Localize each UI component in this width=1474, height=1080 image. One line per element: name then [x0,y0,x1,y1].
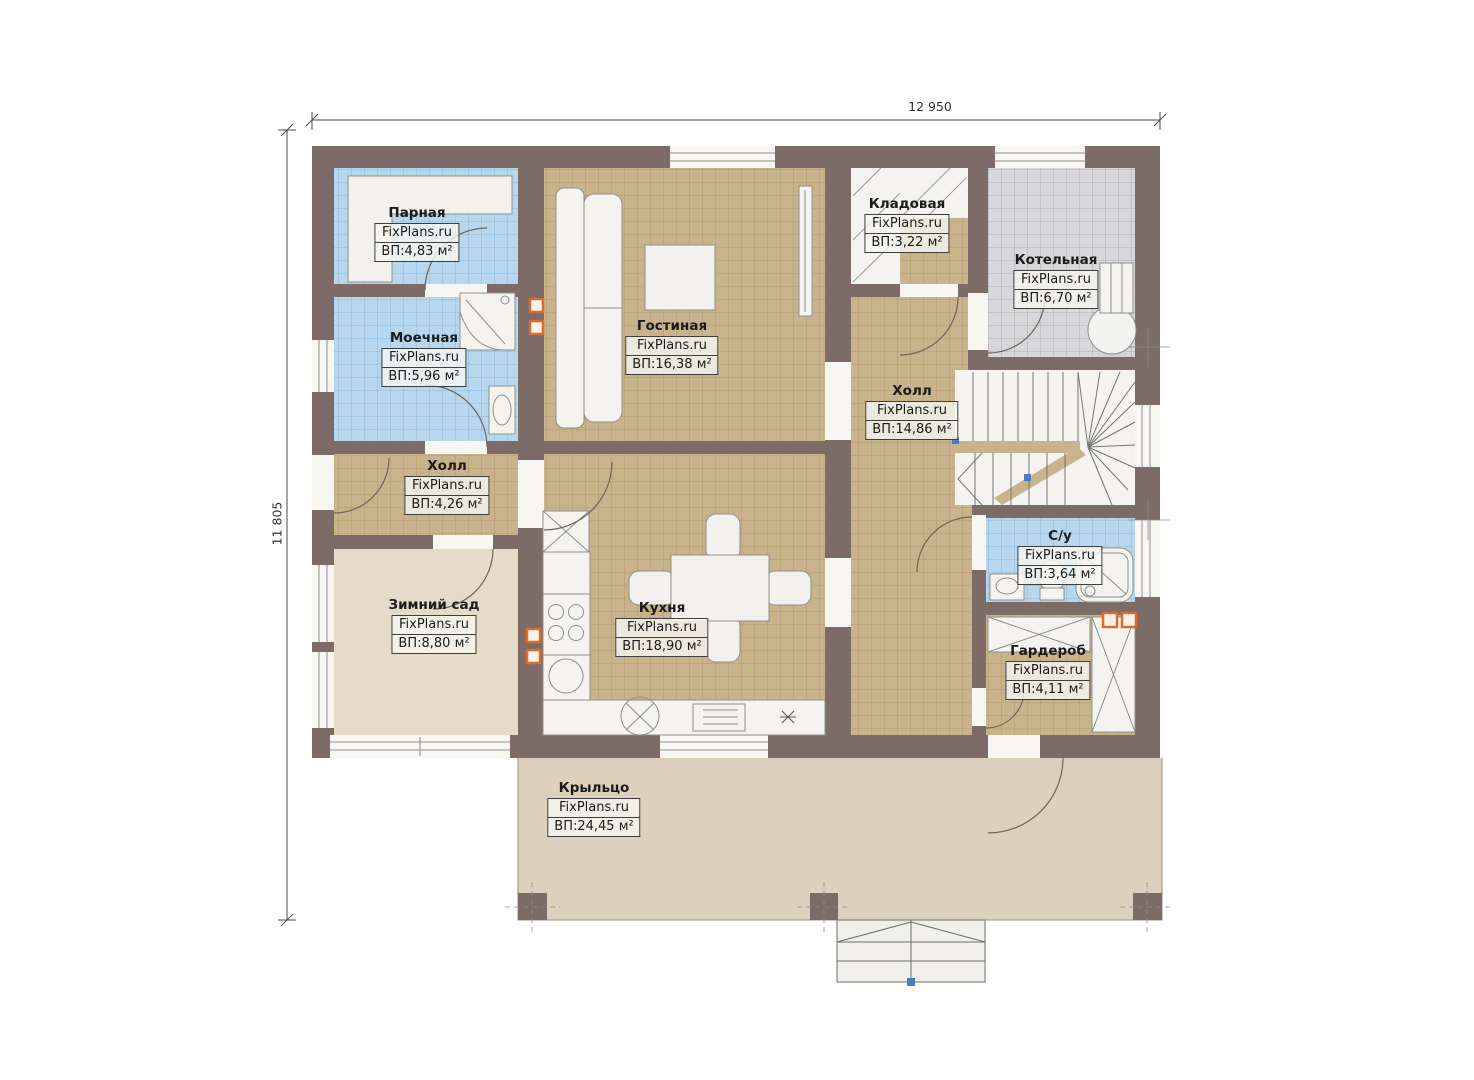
room-name: Моечная [381,330,466,346]
room-brand: FixPlans.ru [1017,546,1102,566]
room-name: С/у [1017,528,1102,544]
room-name: Гардероб [1005,643,1090,659]
room-brand: FixPlans.ru [391,615,476,635]
kitchen-fridge [543,511,589,552]
room-name: Крыльцо [547,780,640,796]
room-label-zimniy-sad: Зимний сад FixPlans.ru ВП:8,80 м² [388,597,479,654]
dimension-height-label: 11 805 [269,502,284,546]
room-brand: FixPlans.ru [547,798,640,818]
kitchen-counter-bottom [543,697,825,735]
room-area: ВП:8,80 м² [391,635,476,654]
room-area: ВП:5,96 м² [381,368,466,387]
room-label-gostinaya: Гостиная FixPlans.ru ВП:16,38 м² [625,318,718,375]
room-name: Зимний сад [388,597,479,613]
room-brand: FixPlans.ru [404,476,489,496]
room-name: Гостиная [625,318,718,334]
room-area: ВП:24,45 м² [547,818,640,837]
room-area: ВП:3,22 м² [864,234,949,253]
room-name: Парная [374,205,459,221]
room-label-parnaya: Парная FixPlans.ru ВП:4,83 м² [374,205,459,262]
floor-plan-drawing [0,0,1474,1080]
room-label-moechnaya: Моечная FixPlans.ru ВП:5,96 м² [381,330,466,387]
room-area: ВП:4,83 м² [374,243,459,262]
room-label-kladovaya: Кладовая FixPlans.ru ВП:3,22 м² [864,196,949,253]
room-area: ВП:4,26 м² [404,496,489,515]
living-room-table [645,245,715,310]
room-brand: FixPlans.ru [615,618,708,638]
room-area: ВП:16,38 м² [625,356,718,375]
room-label-hall-small: Холл FixPlans.ru ВП:4,26 м² [404,458,489,515]
room-area: ВП:14,86 м² [865,421,958,440]
room-name: Холл [865,383,958,399]
room-area: ВП:18,90 м² [615,638,708,657]
room-label-kotelnaya: Котельная FixPlans.ru ВП:6,70 м² [1013,252,1098,309]
room-label-hall-main: Холл FixPlans.ru ВП:14,86 м² [865,383,958,440]
room-label-garderob: Гардероб FixPlans.ru ВП:4,11 м² [1005,643,1090,700]
room-name: Кладовая [864,196,949,212]
room-name: Холл [404,458,489,474]
radiator-living [799,186,812,316]
dimension-width-label: 12 950 [908,99,952,114]
radiator-boiler-room [1100,263,1133,313]
room-brand: FixPlans.ru [381,348,466,368]
room-name: Котельная [1013,252,1098,268]
washbasin-moechnaya [489,386,515,434]
sofa [556,188,622,428]
room-area: ВП:3,64 м² [1017,566,1102,585]
floor-plan-page: 12 950 11 805 Парная FixPlans.ru ВП:4,83… [0,0,1474,1080]
room-brand: FixPlans.ru [1013,270,1098,290]
room-area: ВП:6,70 м² [1013,290,1098,309]
room-brand: FixPlans.ru [1005,661,1090,681]
wardrobe-right [1092,617,1135,732]
room-label-su: С/у FixPlans.ru ВП:3,64 м² [1017,528,1102,585]
room-brand: FixPlans.ru [864,214,949,234]
room-brand: FixPlans.ru [374,223,459,243]
shower-unit [460,293,515,350]
room-brand: FixPlans.ru [865,401,958,421]
room-name: Кухня [615,600,708,616]
stair-rail [955,441,1080,453]
room-label-kuhnya: Кухня FixPlans.ru ВП:18,90 м² [615,600,708,657]
porch-steps [837,920,985,986]
room-brand: FixPlans.ru [625,336,718,356]
kitchen-counter-left [543,552,590,700]
room-area: ВП:4,11 м² [1005,681,1090,700]
room-label-krylco: Крыльцо FixPlans.ru ВП:24,45 м² [547,780,640,837]
